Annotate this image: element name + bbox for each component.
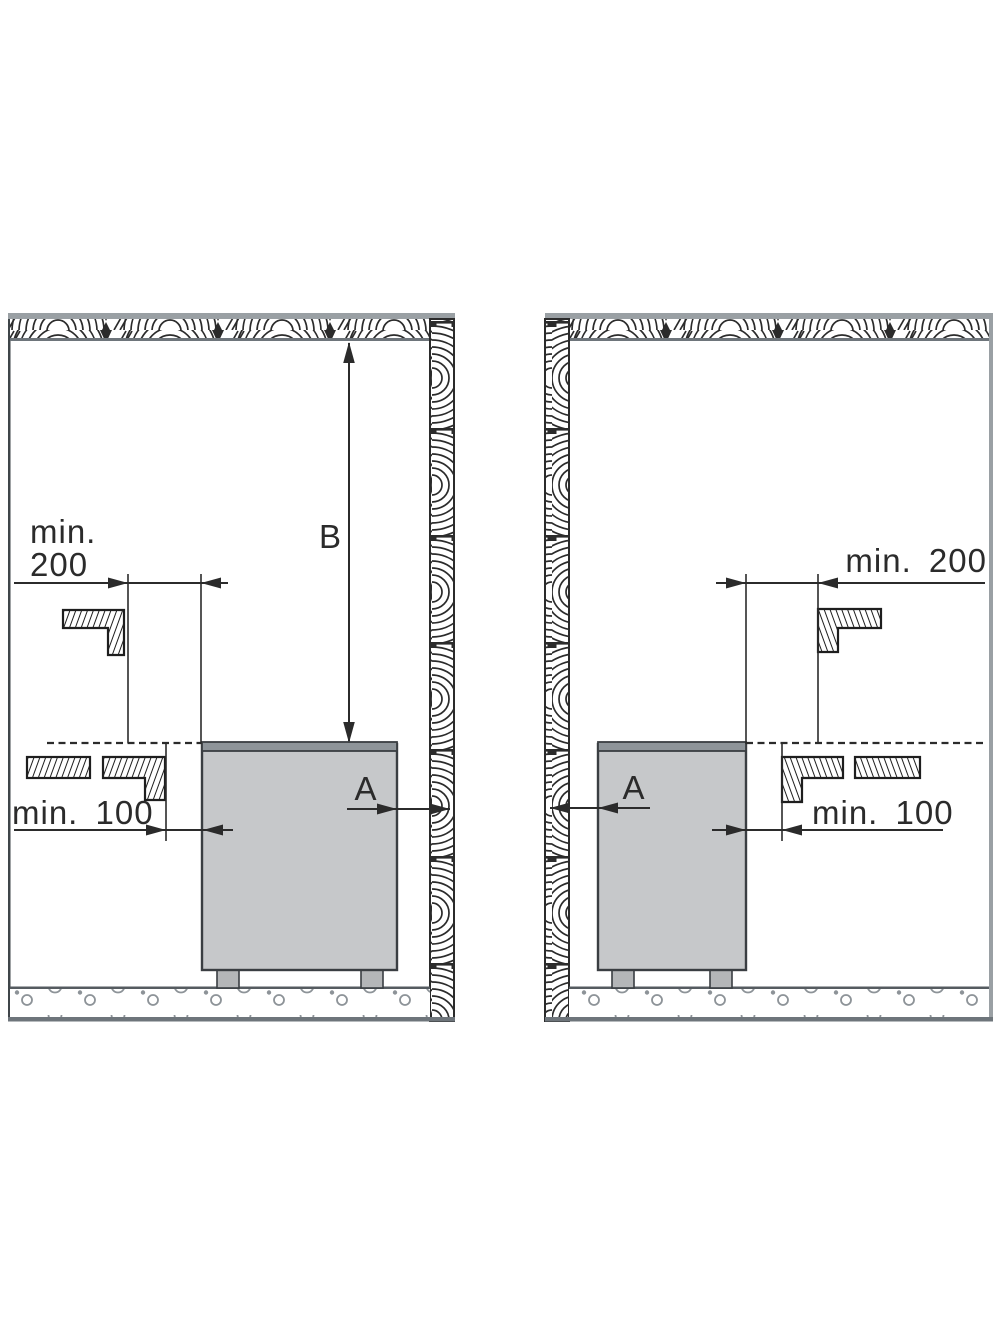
page: min. 200 min. 100 B A bbox=[0, 0, 1000, 1340]
left-floor bbox=[10, 988, 430, 1017]
right-ceiling-top-strip bbox=[545, 313, 993, 319]
left-heater-top-strip bbox=[202, 742, 397, 751]
left-dim-b-arrow-down bbox=[343, 722, 355, 743]
right-floor bbox=[569, 988, 989, 1017]
right-min200-label: min. 200 bbox=[845, 542, 987, 579]
left-panel: min. 200 min. 100 B A bbox=[8, 313, 455, 1022]
left-dim-a-label: A bbox=[354, 770, 377, 807]
right-room-left-wall bbox=[545, 319, 569, 1021]
right-room-right-wall-line bbox=[989, 313, 993, 1021]
left-min200-label-line2: 200 bbox=[30, 546, 88, 583]
left-upper-rail-wood-section bbox=[63, 610, 124, 655]
left-room-left-wall-line bbox=[8, 313, 11, 1021]
right-heater-foot-left bbox=[612, 970, 634, 988]
left-ceiling-top-strip bbox=[8, 313, 455, 319]
left-min200-label-line1: min. bbox=[30, 513, 96, 550]
right-min100-label: min. 100 bbox=[812, 794, 954, 831]
right-heater-foot-right bbox=[710, 970, 732, 988]
clearance-diagram: min. 200 min. 100 B A bbox=[0, 0, 1000, 1340]
left-dim-b-label: B bbox=[319, 518, 342, 555]
right-min200-arrow-left bbox=[818, 578, 838, 589]
right-min200-arrow-right bbox=[726, 578, 746, 589]
left-heater-foot-right bbox=[361, 970, 383, 988]
left-bench-wood-section-a bbox=[27, 757, 90, 778]
left-dim-b-arrow-up bbox=[343, 342, 355, 363]
right-ceiling-bottom-line bbox=[568, 338, 989, 341]
left-dim-b bbox=[343, 342, 355, 743]
left-min200-arrow-left bbox=[201, 578, 221, 589]
left-min200-arrow-right bbox=[108, 578, 128, 589]
right-heater-body bbox=[598, 744, 746, 970]
right-panel: min. 200 min. 100 A bbox=[545, 313, 993, 1022]
right-ceiling-planks bbox=[568, 319, 989, 338]
right-heater bbox=[598, 742, 746, 988]
left-heater-foot-left bbox=[217, 970, 239, 988]
right-bench-wood-section-b bbox=[855, 757, 920, 778]
left-ceiling-bottom-line bbox=[10, 338, 430, 341]
left-room-right-wall bbox=[430, 319, 454, 1021]
right-upper-rail-wood-section bbox=[818, 609, 881, 652]
left-min100-label: min. 100 bbox=[12, 794, 154, 831]
right-min200-dimension bbox=[716, 578, 985, 589]
right-min100-arrow-left bbox=[782, 825, 802, 836]
right-heater-top-strip bbox=[598, 742, 746, 751]
left-ceiling-planks bbox=[10, 319, 430, 338]
left-floor-bottom-band bbox=[8, 1017, 455, 1022]
right-floor-bottom-band bbox=[545, 1017, 993, 1022]
right-dim-a-label: A bbox=[622, 769, 645, 806]
